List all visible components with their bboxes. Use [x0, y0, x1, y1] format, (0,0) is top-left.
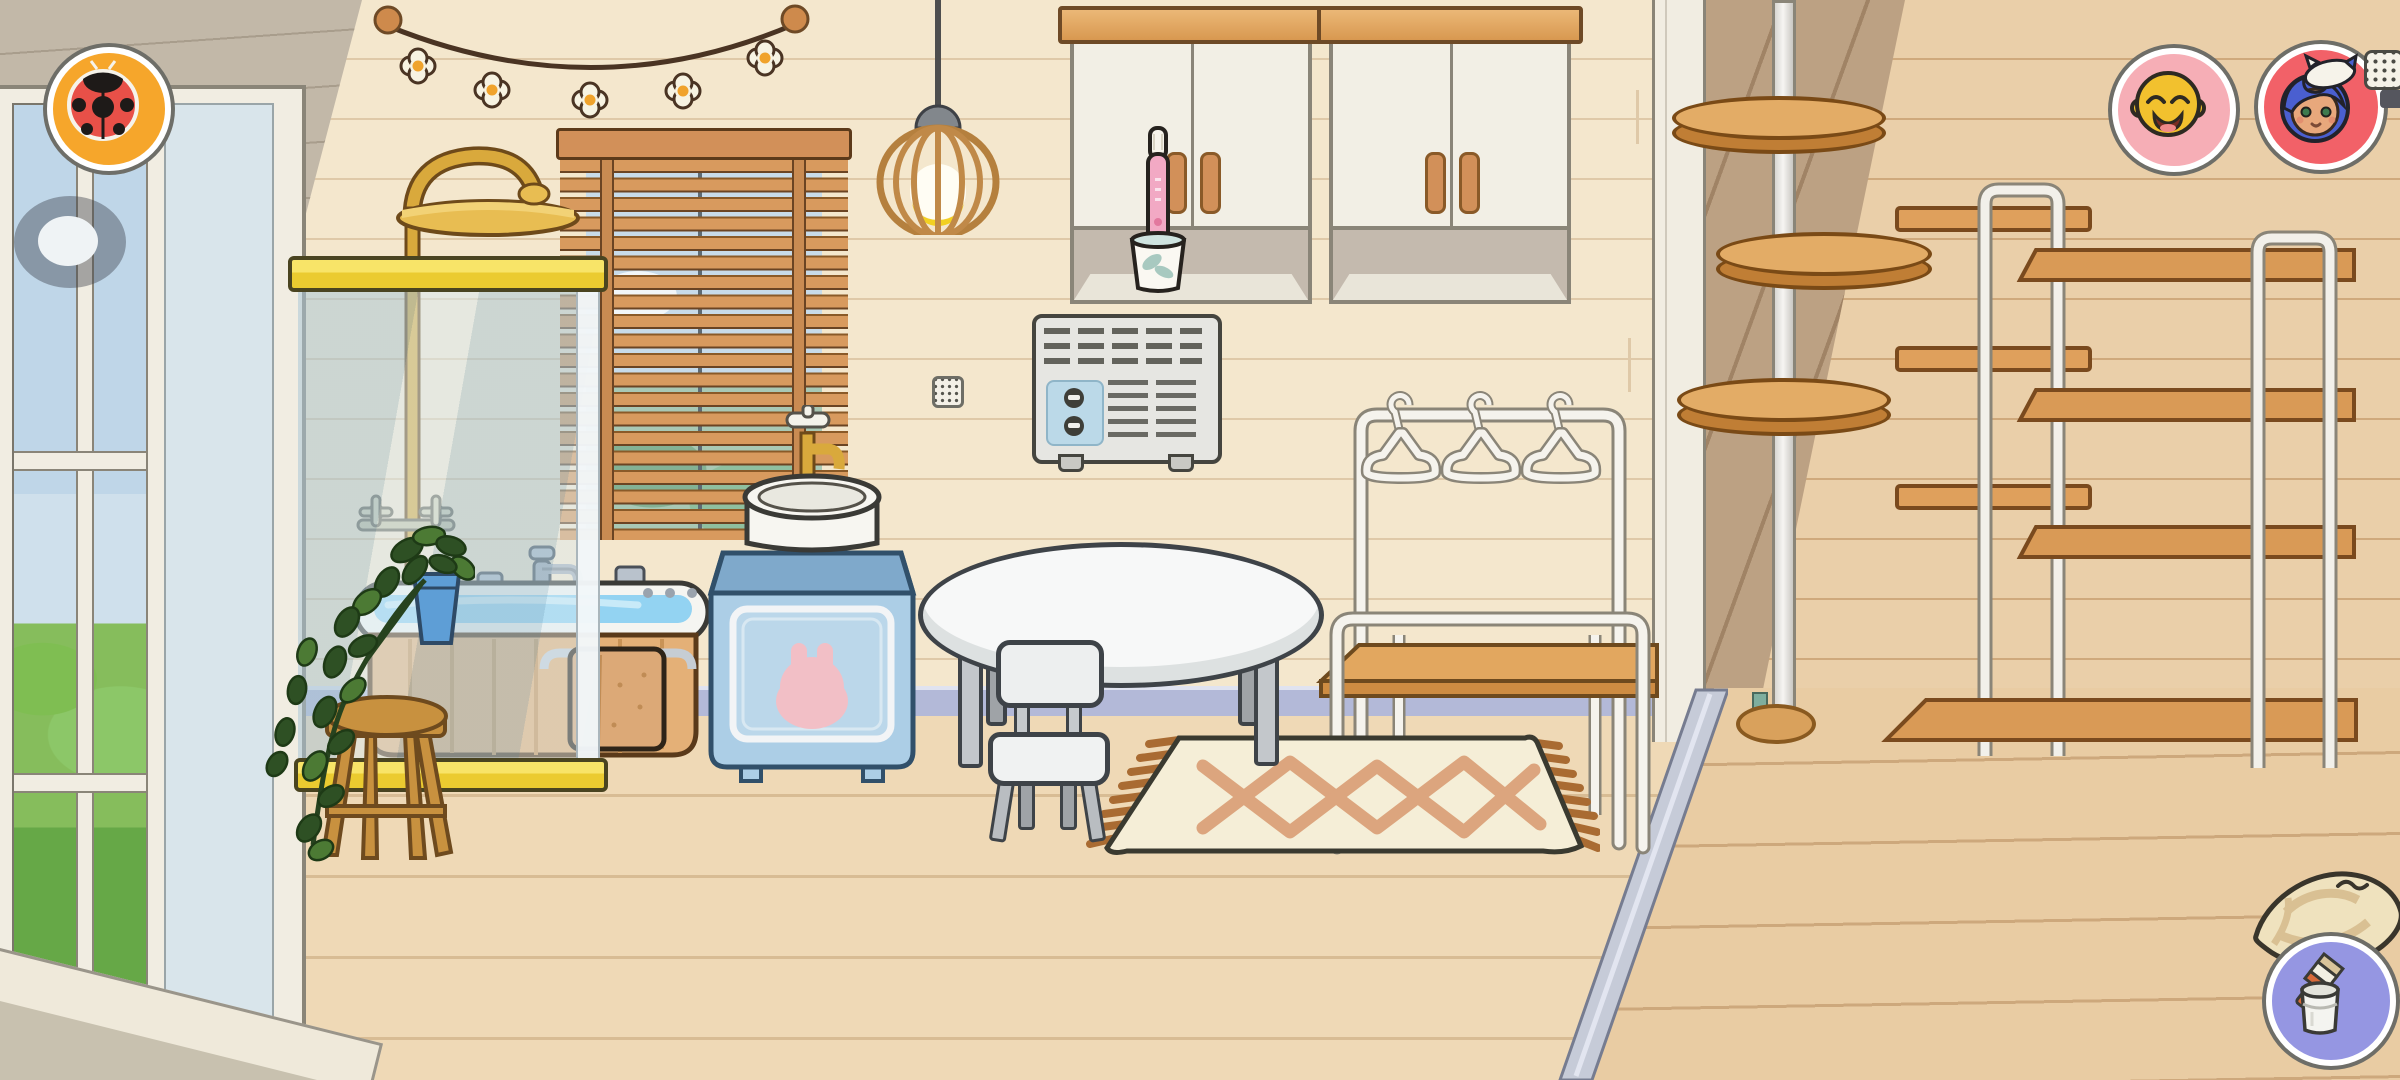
cat-pole-base: [1736, 704, 1816, 744]
ladybug-icon: [53, 53, 153, 153]
ladybug-button[interactable]: [47, 47, 171, 171]
cabinet-open-shelf: [1329, 226, 1571, 304]
paint-bucket-icon: [2272, 942, 2378, 1048]
profile-button-smiley[interactable]: [2112, 48, 2236, 172]
table-leg: [958, 652, 983, 768]
toothbrush-cup[interactable]: [1122, 122, 1194, 297]
cat-hat-face-icon: [2264, 50, 2366, 152]
cabinet-wood-top: [1058, 6, 1324, 44]
cabinet-door-split: [1450, 40, 1453, 230]
cabinet-wood-top: [1317, 6, 1583, 44]
drag-pointer-indicator[interactable]: [14, 196, 126, 288]
rack-bench: [1321, 645, 1657, 696]
game-scene: [0, 0, 2400, 1080]
window-mullion: [14, 773, 156, 793]
chair-backrest: [996, 640, 1104, 708]
ac-foot: [1058, 454, 1084, 472]
plant-on-stool[interactable]: [215, 510, 475, 875]
cabinet-handle: [1425, 152, 1446, 214]
sink-cabinet[interactable]: [705, 405, 920, 785]
ac-knob[interactable]: [1064, 388, 1084, 408]
flower-light-icon: [401, 41, 782, 117]
string-lights[interactable]: [370, 2, 820, 122]
cat-pole-platform[interactable]: [1677, 378, 1883, 432]
wall-cabinet-right[interactable]: [1325, 2, 1575, 300]
wooden-stool: [323, 697, 451, 858]
chair[interactable]: [988, 640, 1104, 835]
cat-pole-platform[interactable]: [1672, 96, 1878, 150]
drag-pointer-dot: [38, 216, 98, 266]
ac-top-vents: [1044, 328, 1202, 372]
cabinet-doors[interactable]: [1329, 36, 1571, 234]
ac-control-panel: [1046, 380, 1104, 446]
apps-grid-icon[interactable]: [2364, 50, 2400, 90]
wall-plank-seam: [1628, 338, 1631, 392]
rug[interactable]: [1085, 722, 1600, 867]
chair-seat: [988, 732, 1110, 786]
cabinet-shelf-floor: [1333, 274, 1567, 300]
cabinet-handle: [1200, 152, 1221, 214]
ac-knob[interactable]: [1064, 416, 1084, 436]
smiley-face-icon: [2118, 54, 2218, 154]
pendant-lamp[interactable]: [866, 0, 1006, 235]
window-center-post: [146, 103, 166, 1029]
cabinet-handle: [1459, 152, 1480, 214]
ac-side-vents: [1108, 380, 1204, 442]
oval-table[interactable]: [918, 542, 1324, 688]
air-conditioner[interactable]: [1032, 314, 1222, 464]
shower-glass-edge: [576, 282, 600, 764]
ac-foot: [1168, 454, 1194, 472]
shelf-unit[interactable]: [1878, 168, 2400, 778]
paint-tool-button[interactable]: [2266, 936, 2396, 1066]
window-mullion: [14, 451, 156, 471]
edge-pull-tab[interactable]: [2380, 90, 2400, 108]
table-leg: [1254, 652, 1279, 766]
wall-plank-seam: [1636, 90, 1639, 144]
power-outlet[interactable]: [932, 376, 964, 408]
shower-glass-top-rail: [288, 256, 608, 292]
